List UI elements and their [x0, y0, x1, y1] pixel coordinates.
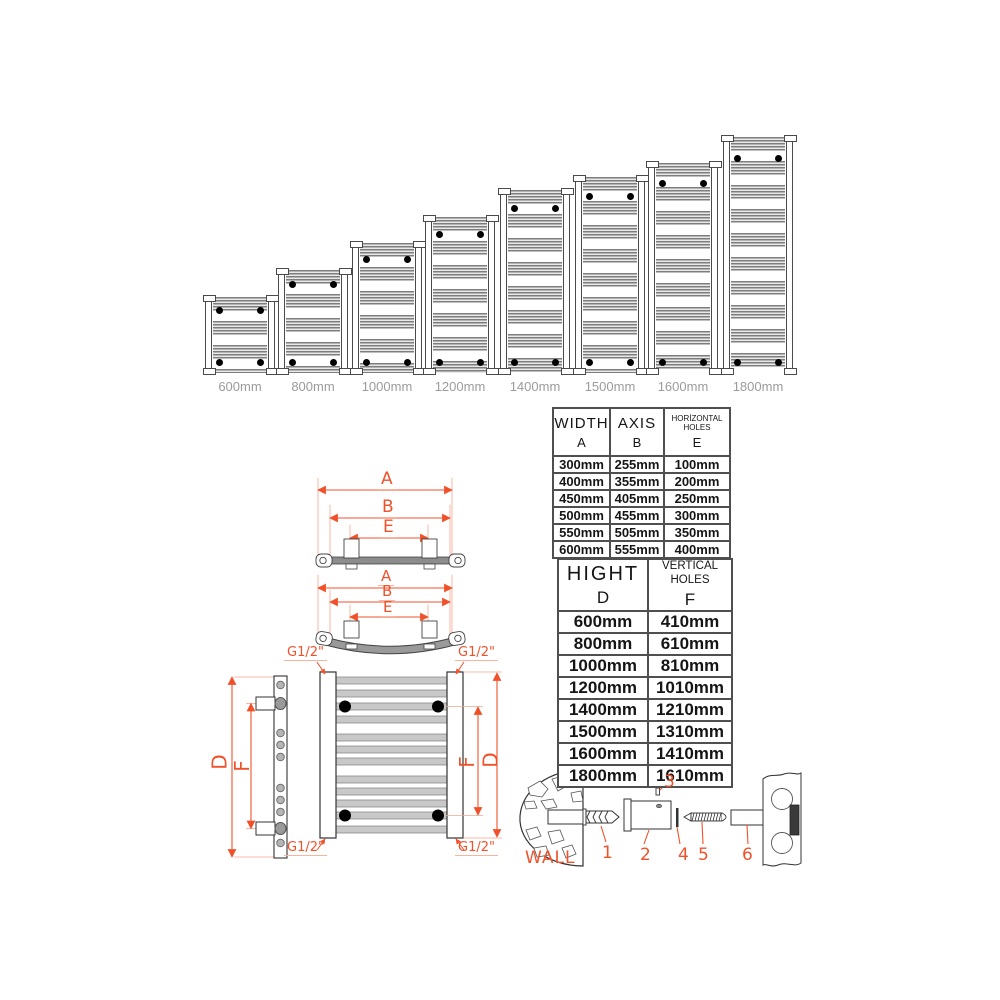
dim-label-a-straight: A	[378, 471, 396, 490]
table-cell: 300mm	[553, 456, 610, 473]
table-cell: 400mm	[664, 541, 730, 558]
table-cell: 1210mm	[648, 699, 732, 721]
pin-part	[676, 808, 679, 827]
table-cell: 100mm	[664, 456, 730, 473]
g-half-label-top-left: G1/2"	[284, 646, 327, 661]
table-cell: 1010mm	[648, 677, 732, 699]
table-row: 450mm405mm250mm	[553, 490, 730, 507]
hight-header: HIGHT D	[558, 559, 648, 611]
width-table: WIDTH A AXIS B HORİZONTAL HOLES E 300mm2…	[552, 407, 731, 559]
part-number-label-6: 6	[742, 847, 753, 864]
front-view-bars	[336, 677, 447, 833]
table-cell: 455mm	[610, 507, 664, 524]
table-row: 400mm355mm200mm	[553, 473, 730, 490]
part-number-label-1: 1	[602, 845, 613, 862]
axis-header: AXIS B	[610, 408, 664, 456]
height-table: HIGHT D VERTICAL HOLES F 600mm410mm800mm…	[557, 558, 733, 788]
table-cell: 600mm	[558, 611, 648, 633]
table-cell: 255mm	[610, 456, 664, 473]
table-row: 1500mm1310mm	[558, 721, 732, 743]
height-table-header-row: HIGHT D VERTICAL HOLES F	[558, 559, 732, 611]
table-cell: 400mm	[553, 473, 610, 490]
table-cell: 1800mm	[558, 765, 648, 787]
dim-label-b-straight: B	[379, 499, 397, 518]
g-half-label-top-right: G1/2"	[455, 646, 498, 661]
grub-screw-part	[656, 788, 660, 795]
table-cell: 800mm	[558, 633, 648, 655]
dim-label-d-front: D	[481, 752, 501, 767]
table-row: 600mm410mm	[558, 611, 732, 633]
table-cell: 555mm	[610, 541, 664, 558]
table-cell: 300mm	[664, 507, 730, 524]
table-cell: 1410mm	[648, 743, 732, 765]
part-number-label-5: 5	[698, 847, 709, 864]
part-number-label-4: 4	[678, 847, 689, 864]
table-cell: 350mm	[664, 524, 730, 541]
part-number-label-2: 2	[640, 847, 651, 864]
table-cell: 1500mm	[558, 721, 648, 743]
vertical-holes-header: VERTICAL HOLES F	[648, 559, 732, 611]
dim-label-f-side: F	[232, 760, 252, 772]
table-row: 1200mm1010mm	[558, 677, 732, 699]
table-cell: 405mm	[610, 490, 664, 507]
table-cell: 610mm	[648, 633, 732, 655]
g-half-label-bottom-right: G1/2"	[455, 841, 498, 856]
table-row: 1400mm1210mm	[558, 699, 732, 721]
table-row: 600mm555mm400mm	[553, 541, 730, 558]
table-cell: 505mm	[610, 524, 664, 541]
table-cell: 1000mm	[558, 655, 648, 677]
table-cell: 450mm	[553, 490, 610, 507]
horizontal-holes-header: HORİZONTAL HOLES E	[664, 408, 730, 456]
dim-label-d-side: D	[210, 754, 230, 769]
table-cell: 1610mm	[648, 765, 732, 787]
table-row: 1000mm810mm	[558, 655, 732, 677]
table-row: 1800mm1610mm	[558, 765, 732, 787]
table-row: 800mm610mm	[558, 633, 732, 655]
width-header: WIDTH A	[553, 408, 610, 456]
table-row: 300mm255mm100mm	[553, 456, 730, 473]
table-cell: 410mm	[648, 611, 732, 633]
table-cell: 550mm	[553, 524, 610, 541]
table-cell: 1200mm	[558, 677, 648, 699]
g-half-label-bottom-left: G1/2"	[284, 841, 327, 856]
table-cell: 810mm	[648, 655, 732, 677]
wall-plug-part	[583, 809, 619, 825]
table-cell: 250mm	[664, 490, 730, 507]
table-cell: 500mm	[553, 507, 610, 524]
technical-drawing-svg	[0, 0, 1000, 1000]
wall-label: WALL	[525, 850, 575, 867]
table-row: 1600mm1410mm	[558, 743, 732, 765]
screw-part	[684, 813, 726, 821]
table-row: 500mm455mm300mm	[553, 507, 730, 524]
part-number-label-3: 3	[664, 774, 675, 791]
dim-label-e-curved: E	[380, 600, 395, 617]
bracket-sleeve-part	[624, 799, 671, 831]
table-cell: 1310mm	[648, 721, 732, 743]
table-cell: 600mm	[553, 541, 610, 558]
spec-sheet: 600mm800mm1000mm1200mm1400mm1500mm1600mm…	[0, 0, 1000, 1000]
table-cell: 1400mm	[558, 699, 648, 721]
dim-label-e-straight: E	[380, 519, 397, 538]
table-cell: 1600mm	[558, 743, 648, 765]
width-table-header-row: WIDTH A AXIS B HORİZONTAL HOLES E	[553, 408, 730, 456]
table-row: 550mm505mm350mm	[553, 524, 730, 541]
table-cell: 200mm	[664, 473, 730, 490]
table-cell: 355mm	[610, 473, 664, 490]
dim-label-f-front: F	[457, 756, 477, 768]
